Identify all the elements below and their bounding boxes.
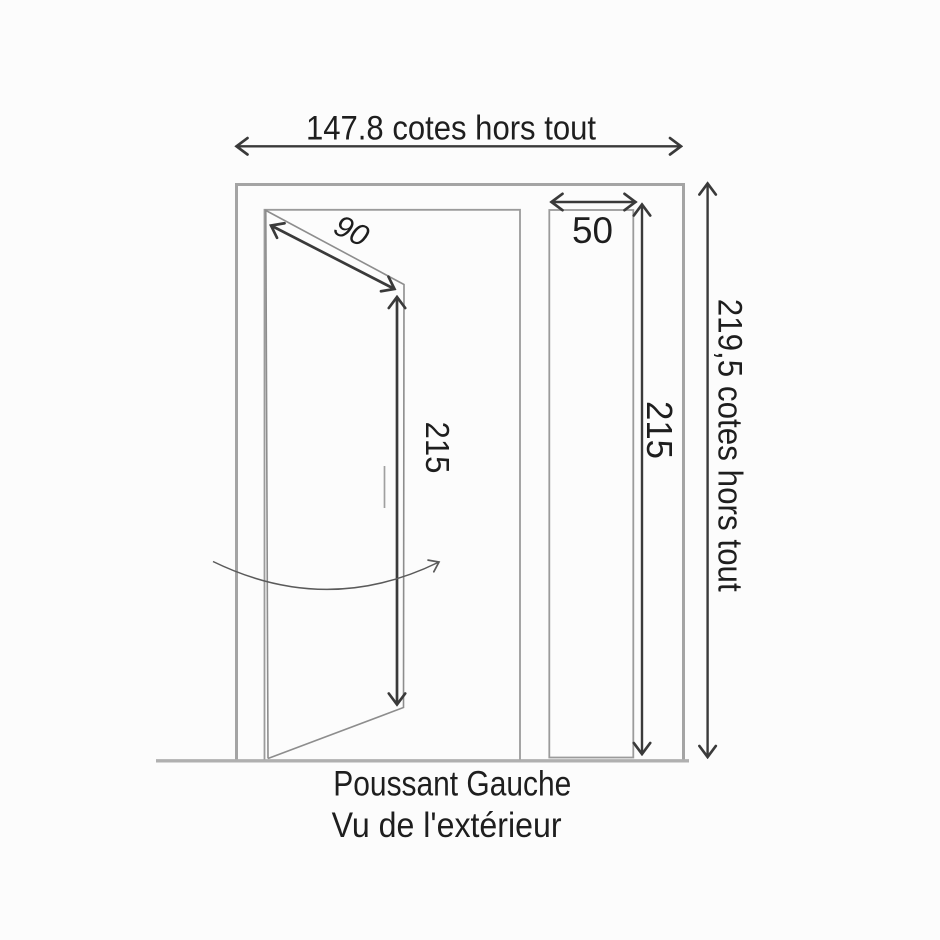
svg-text:147.8 cotes hors tout: 147.8 cotes hors tout	[306, 110, 596, 148]
svg-text:Poussant Gauche: Poussant Gauche	[333, 765, 571, 804]
svg-text:215: 215	[639, 401, 680, 459]
svg-text:Vu de l'extérieur: Vu de l'extérieur	[332, 806, 562, 845]
svg-text:215: 215	[419, 422, 456, 474]
svg-text:50: 50	[572, 210, 613, 251]
svg-text:219,5 cotes hors tout: 219,5 cotes hors tout	[711, 299, 749, 593]
